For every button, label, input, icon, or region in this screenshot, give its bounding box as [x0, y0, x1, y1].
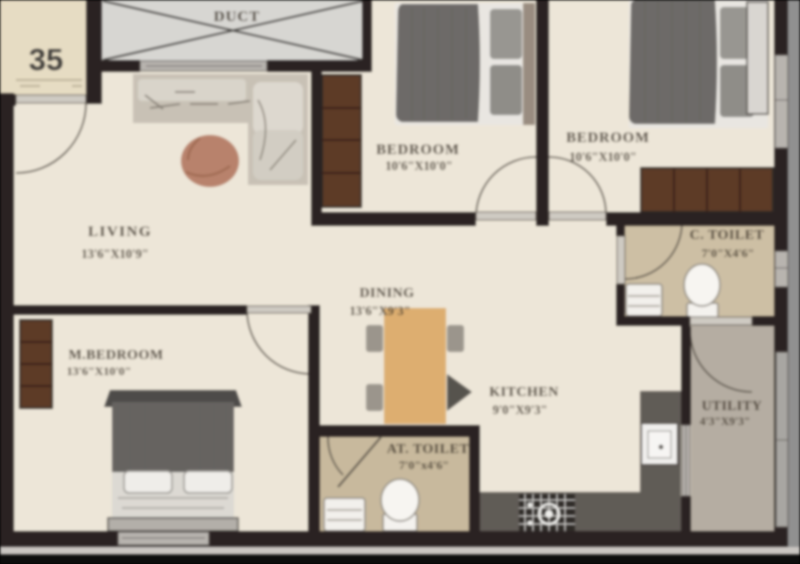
- svg-text:10'6"X10'0": 10'6"X10'0": [385, 159, 452, 173]
- svg-text:13'6"X10'0": 13'6"X10'0": [67, 364, 132, 378]
- svg-text:10'6"X10'0": 10'6"X10'0": [569, 150, 636, 164]
- svg-text:13'6"X9'3": 13'6"X9'3": [349, 304, 410, 318]
- svg-text:C. TOILET: C. TOILET: [690, 228, 765, 243]
- svg-text:LIVING: LIVING: [88, 224, 152, 240]
- svg-text:9'0"X9'3": 9'0"X9'3": [493, 403, 548, 417]
- svg-text:DUCT: DUCT: [214, 9, 261, 25]
- svg-text:DINING: DINING: [359, 286, 414, 301]
- svg-text:AT. TOILET: AT. TOILET: [387, 442, 470, 457]
- svg-text:35: 35: [29, 42, 63, 77]
- svg-text:4'3"X9'3": 4'3"X9'3": [700, 416, 750, 428]
- svg-text:7'0"X4'6": 7'0"X4'6": [702, 246, 755, 260]
- svg-text:M.BEDROOM: M.BEDROOM: [68, 348, 163, 363]
- svg-text:KITCHEN: KITCHEN: [489, 385, 559, 400]
- svg-text:13'6"X10'9": 13'6"X10'9": [81, 247, 148, 261]
- svg-text:UTILITY: UTILITY: [702, 398, 763, 413]
- svg-text:BEDROOM: BEDROOM: [566, 130, 650, 146]
- svg-text:7'0"x4'6": 7'0"x4'6": [399, 458, 449, 472]
- svg-text:BEDROOM: BEDROOM: [376, 142, 460, 158]
